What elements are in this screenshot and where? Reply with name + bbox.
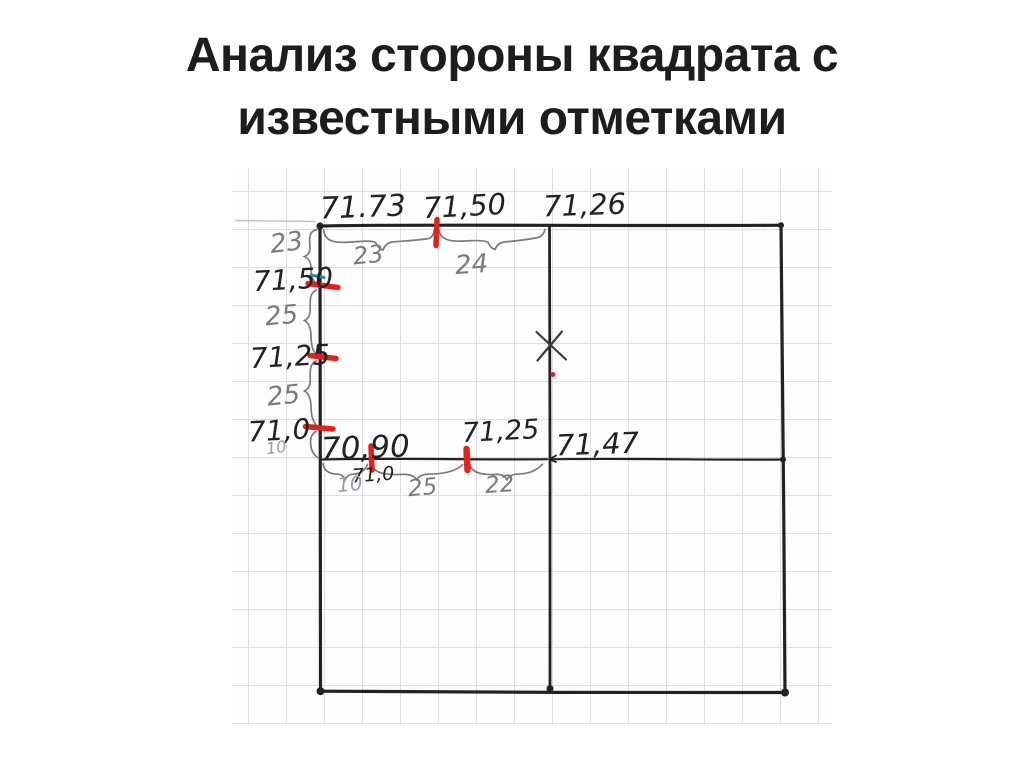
- distance-label-top-24: 24: [454, 249, 489, 281]
- elevation-label-top-left: 71.73: [319, 189, 406, 227]
- distance-label-left-23: 23: [268, 226, 305, 260]
- tick-mid-7125: [467, 449, 468, 470]
- elevation-label-mid-7125: 71,25: [461, 414, 540, 449]
- distance-label-left-25b: 25: [266, 379, 302, 412]
- elevation-label-center-7147: 71,47: [555, 426, 639, 463]
- node-bottom-left: [317, 687, 325, 695]
- brace-left-10: [310, 432, 317, 458]
- distance-label-left-10: 10: [265, 437, 288, 459]
- node-bottom-center: [547, 685, 554, 692]
- slide: Анализ стороны квадрата с известными отм…: [0, 0, 1024, 767]
- elevation-label-top-middle: 71,50: [422, 187, 507, 225]
- brace-top-24: [439, 230, 545, 250]
- sketch-drawing: [0, 0, 1024, 767]
- distance-label-mid-22: 22: [484, 471, 515, 499]
- cross-mark: [537, 332, 567, 361]
- center-vertical-line: [549, 226, 550, 689]
- elevation-label-top-right: 71,26: [542, 187, 626, 224]
- elevation-label-left-7150: 71,50: [252, 261, 334, 298]
- distance-label-top-23: 23: [352, 239, 385, 270]
- distance-label-left-25a: 25: [264, 300, 300, 333]
- distance-label-mid-10: 10: [336, 471, 363, 497]
- red-dot: [551, 372, 556, 377]
- node-top-right: [778, 222, 784, 228]
- elevation-label-left-7125: 71,25: [249, 338, 331, 375]
- node-bottom-right: [781, 689, 789, 697]
- distance-label-mid-25: 25: [407, 474, 438, 502]
- square-bottom-edge: [321, 691, 786, 693]
- leader-line: [236, 221, 315, 222]
- elevation-label-mid-7090: 70,90: [320, 428, 410, 467]
- node-right-middle: [780, 457, 786, 463]
